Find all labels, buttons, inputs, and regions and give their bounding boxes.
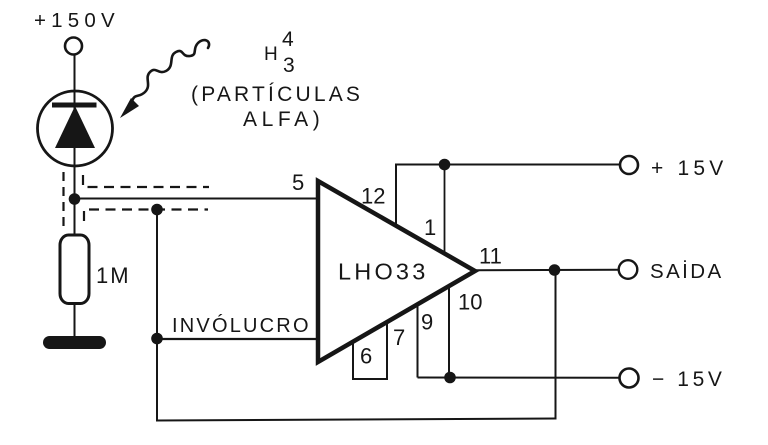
svg-text:INVÓLUCRO: INVÓLUCRO xyxy=(172,314,311,337)
svg-text:ALFA): ALFA) xyxy=(243,108,324,131)
svg-text:1: 1 xyxy=(424,215,436,240)
svg-text:LHO33: LHO33 xyxy=(338,259,428,285)
svg-text:3: 3 xyxy=(283,54,295,77)
svg-text:9: 9 xyxy=(421,310,433,335)
svg-text:10: 10 xyxy=(458,290,482,315)
svg-text:1M: 1M xyxy=(96,263,131,288)
svg-text:H: H xyxy=(264,44,278,65)
svg-text:4: 4 xyxy=(282,28,294,51)
svg-text:6: 6 xyxy=(360,344,372,369)
svg-text:12: 12 xyxy=(361,184,385,209)
svg-text:+150V: +150V xyxy=(34,9,120,32)
svg-text:(PARTÍCULAS: (PARTÍCULAS xyxy=(191,83,363,106)
svg-text:− 15V: − 15V xyxy=(652,368,725,391)
svg-text:SAİDA: SAİDA xyxy=(650,260,724,283)
svg-text:7: 7 xyxy=(393,325,405,350)
svg-text:5: 5 xyxy=(292,170,304,195)
svg-text:11: 11 xyxy=(479,244,502,269)
svg-text:+ 15V: + 15V xyxy=(651,157,727,180)
